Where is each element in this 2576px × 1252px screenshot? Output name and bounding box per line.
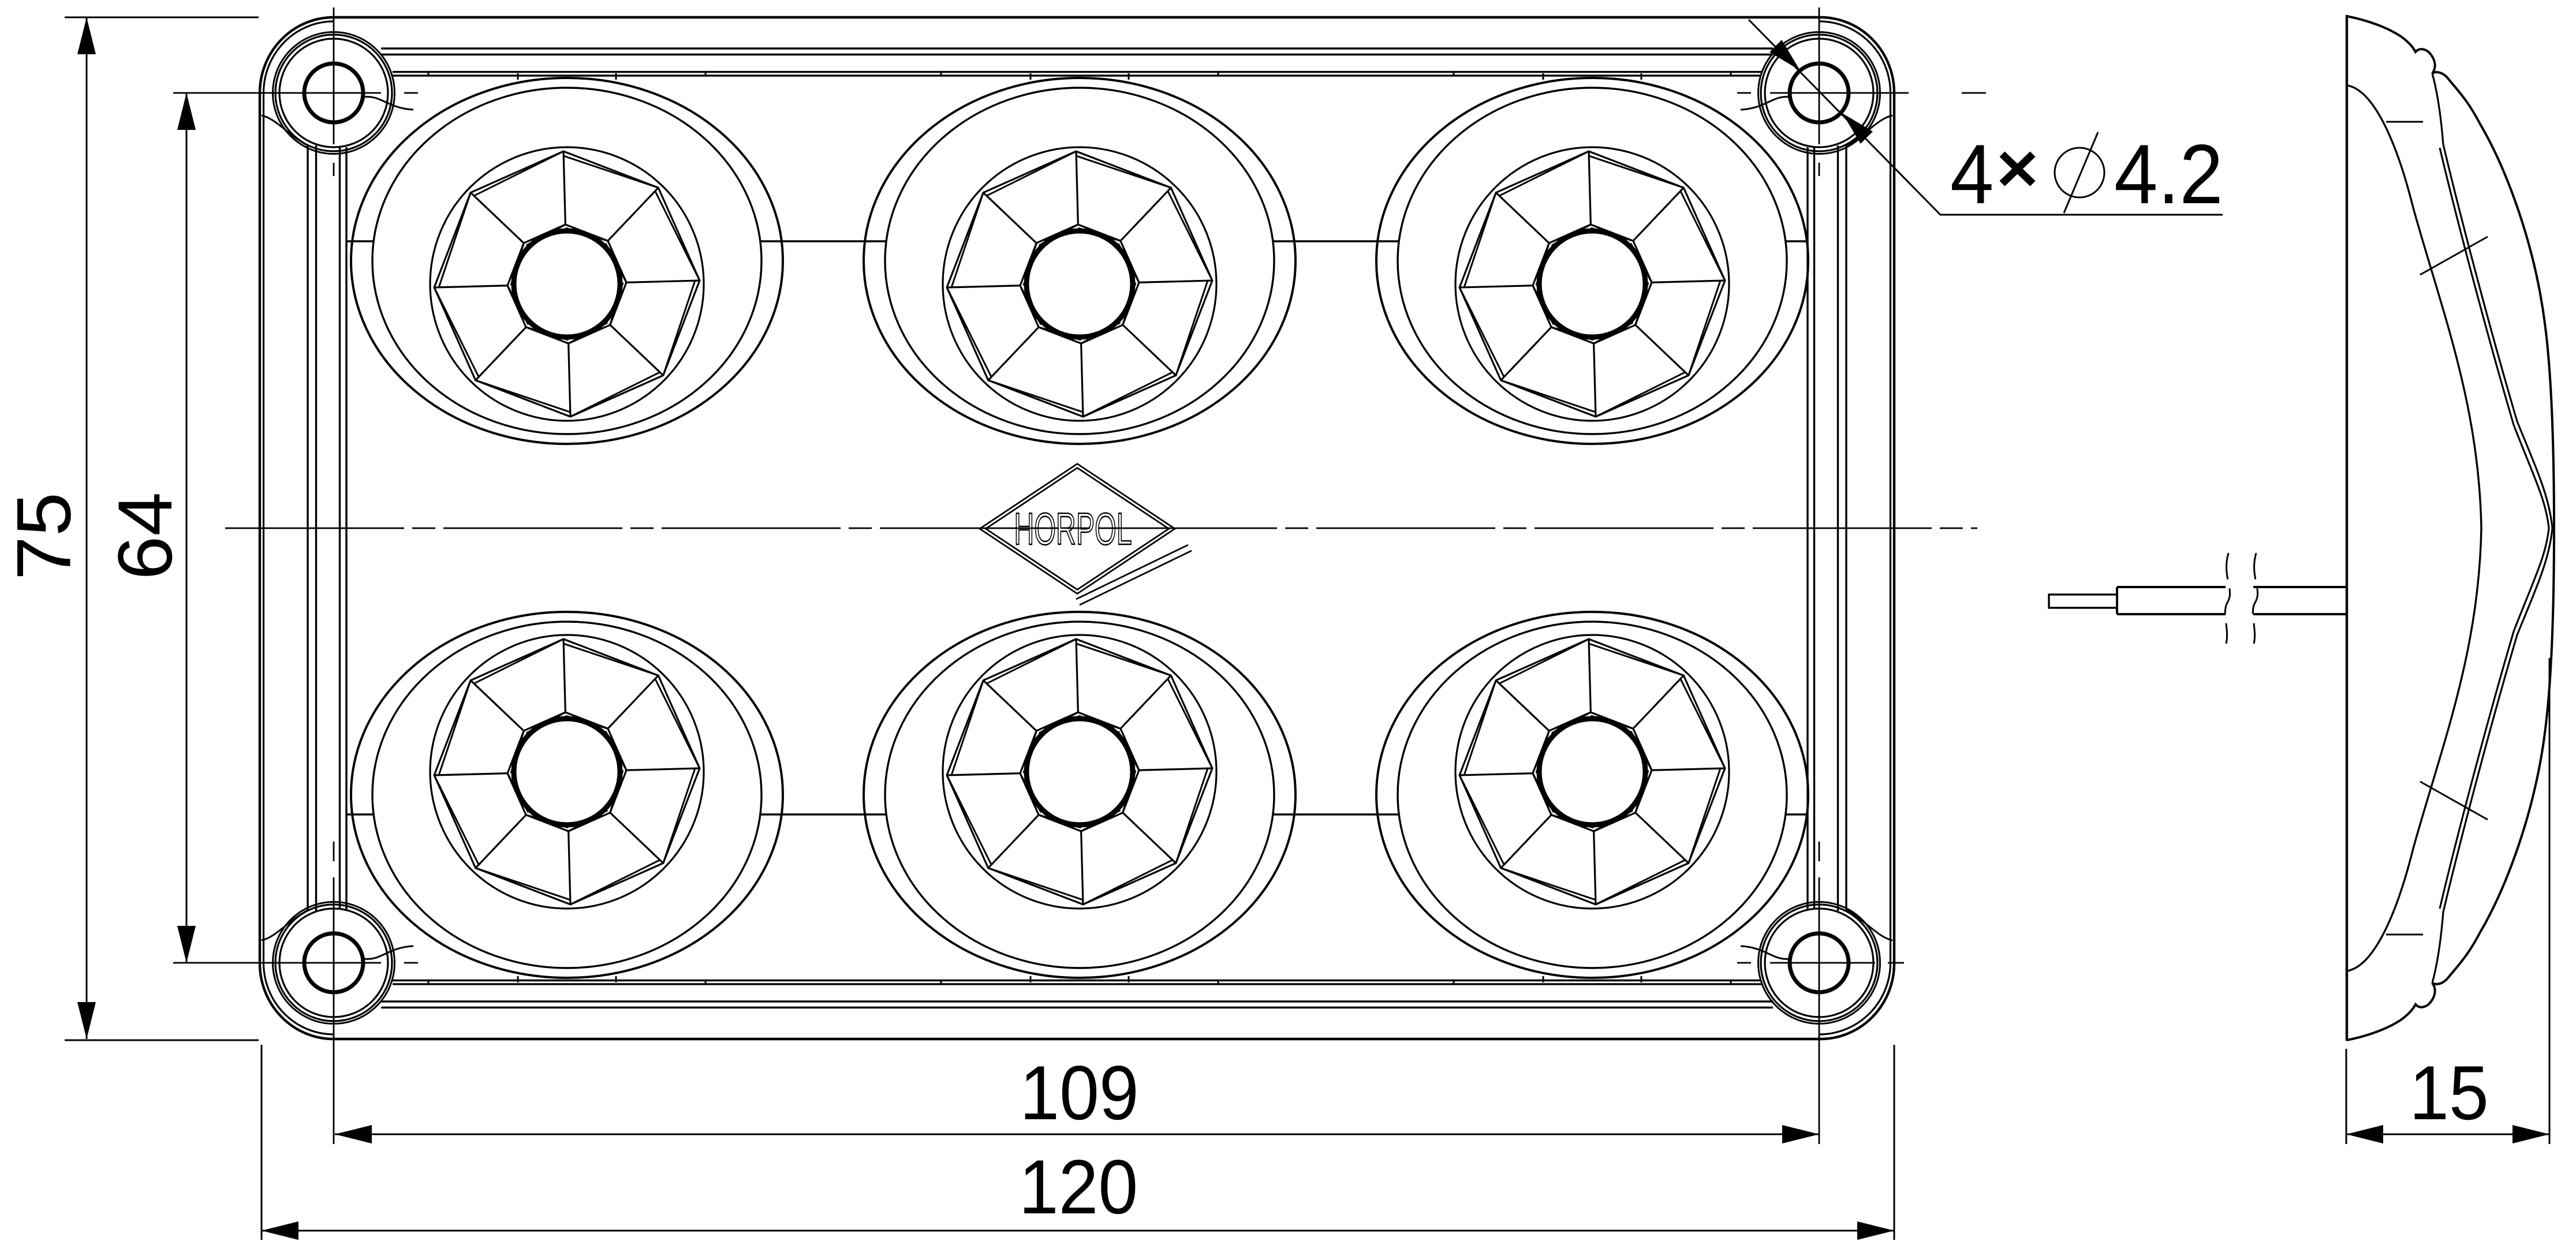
svg-text:4.2: 4.2	[2114, 126, 2223, 221]
svg-text:4: 4	[1950, 126, 1994, 221]
svg-text:120: 120	[1019, 1145, 1138, 1230]
svg-text:75: 75	[1, 492, 87, 580]
svg-text:109: 109	[1020, 1051, 1138, 1136]
svg-text:64: 64	[102, 492, 188, 580]
svg-text:15: 15	[2409, 1051, 2489, 1136]
